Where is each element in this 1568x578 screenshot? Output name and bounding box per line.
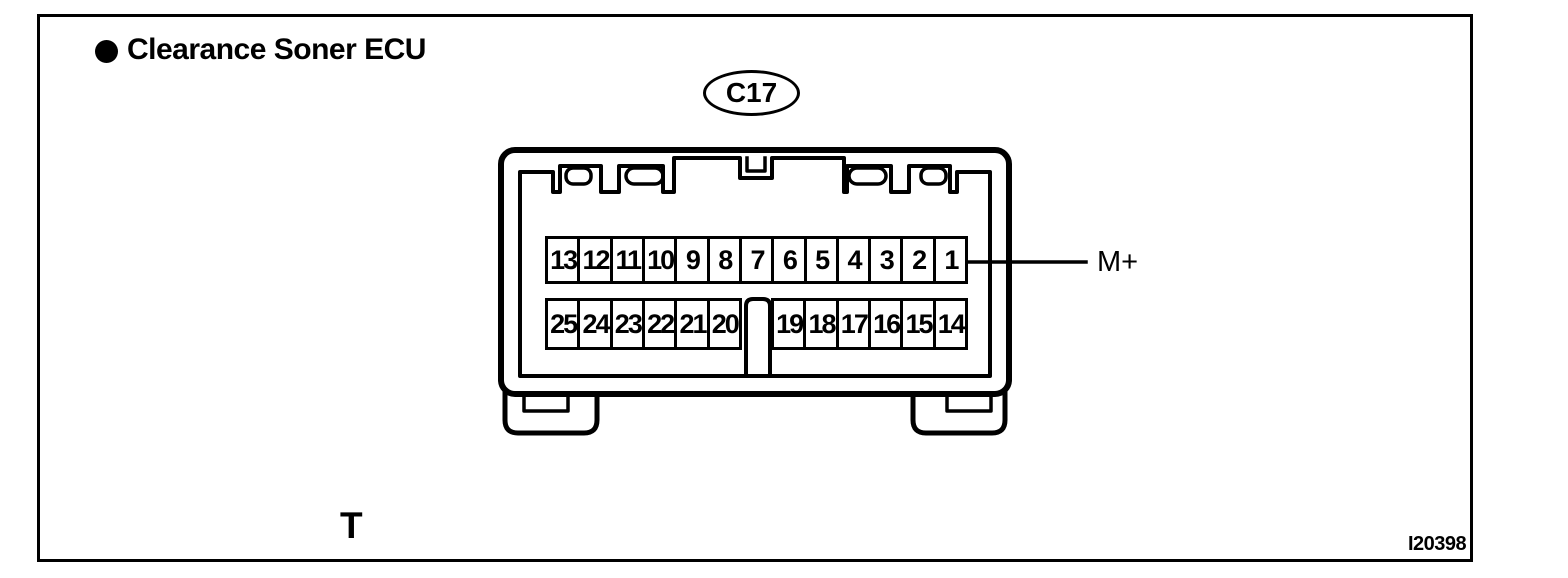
pin-18: 18 — [803, 301, 835, 347]
pin-25: 25 — [548, 301, 577, 347]
pin-row-bottom-left: 252423222120 — [545, 298, 742, 350]
pin-2: 2 — [900, 239, 932, 281]
pin-4: 4 — [836, 239, 868, 281]
pin-19: 19 — [774, 301, 803, 347]
pin-20: 20 — [707, 301, 739, 347]
pin-15: 15 — [900, 301, 932, 347]
pin-13: 13 — [548, 239, 577, 281]
manual-diagram-page: Clearance Soner ECU C17 — [0, 0, 1568, 578]
pin-8: 8 — [707, 239, 739, 281]
pin-12: 12 — [577, 239, 609, 281]
pin-24: 24 — [577, 301, 609, 347]
pin-17: 17 — [836, 301, 868, 347]
top-notch-inner-wall — [747, 158, 765, 171]
pin-7: 7 — [739, 239, 771, 281]
pin-row-bottom-right: 191817161514 — [771, 298, 968, 350]
terminal-label: M+ — [1097, 247, 1138, 277]
pin-9: 9 — [674, 239, 706, 281]
mounting-feet — [505, 394, 1005, 433]
center-key-slot — [746, 299, 770, 376]
connector-drawing — [0, 0, 1568, 578]
pin-23: 23 — [610, 301, 642, 347]
pin-11: 11 — [610, 239, 642, 281]
pin-6: 6 — [771, 239, 803, 281]
pin-3: 3 — [868, 239, 900, 281]
pin-5: 5 — [804, 239, 836, 281]
pin-14: 14 — [933, 301, 965, 347]
pin-21: 21 — [674, 301, 706, 347]
pin-1: 1 — [933, 239, 965, 281]
pin-22: 22 — [642, 301, 674, 347]
pin-16: 16 — [868, 301, 900, 347]
pin-10: 10 — [642, 239, 674, 281]
pin-row-top: 13121110987654321 — [545, 236, 968, 284]
